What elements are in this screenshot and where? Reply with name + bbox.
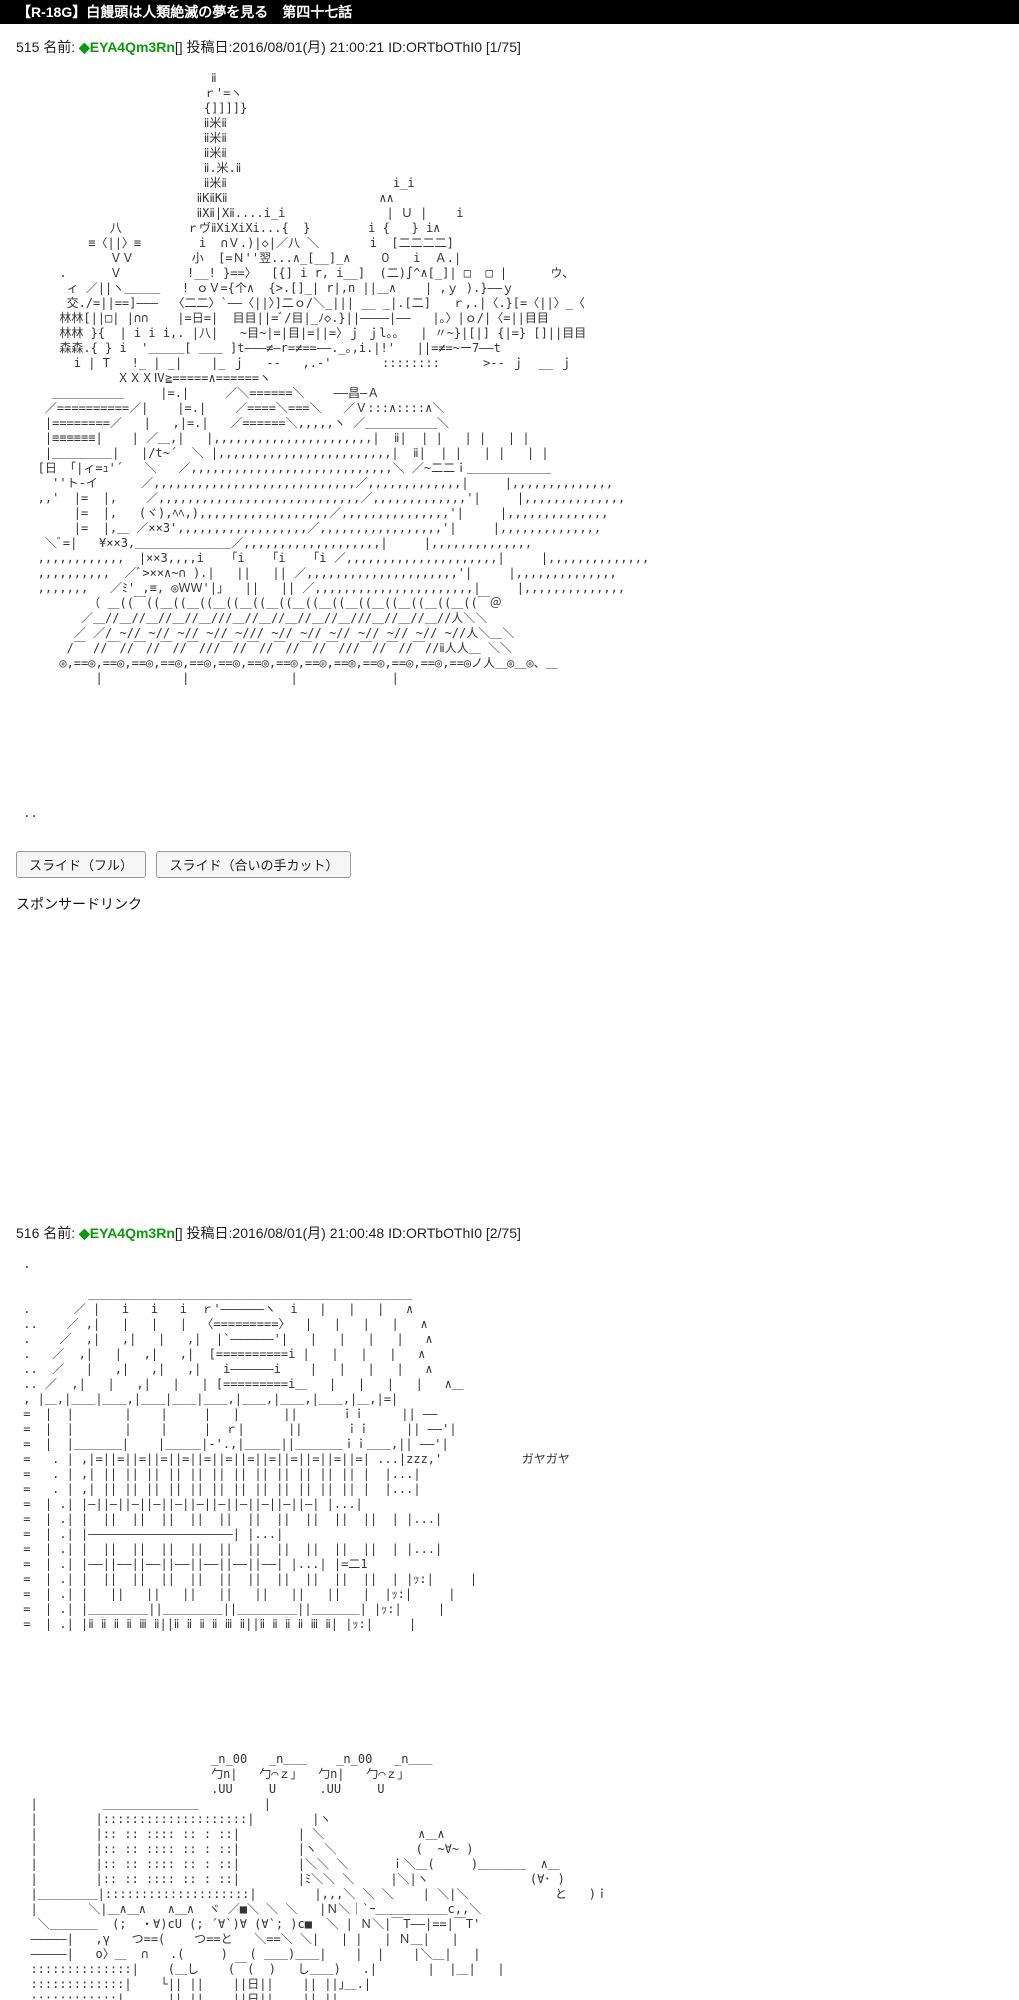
post-515-header: 515 名前: ◆EYA4Qm3Rn[] 投稿日:2016/08/01(月) 2… (16, 37, 1019, 57)
thread-title-bar: 【R-18G】白饅頭は人類絶滅の夢を見る 第四十七話 (0, 0, 1019, 24)
post-515: 515 名前: ◆EYA4Qm3Rn[] 投稿日:2016/08/01(月) 2… (16, 37, 1019, 1210)
poster-tripcode[interactable]: ◆EYA4Qm3Rn (79, 39, 175, 55)
post-number: 516 (16, 1225, 39, 1241)
post-meta: [] 投稿日:2016/08/01(月) 21:00:48 ID:ORTbOTh… (175, 1225, 521, 1241)
slide-button-row: スライド（フル） スライド（合いの手カット） (16, 851, 1019, 878)
post-516: 516 名前: ◆EYA4Qm3Rn[] 投稿日:2016/08/01(月) 2… (16, 1223, 1019, 2000)
name-label: 名前: (43, 1225, 75, 1241)
ad-area (16, 914, 1019, 1210)
slide-cut-button[interactable]: スライド（合いの手カット） (156, 851, 351, 878)
poster-tripcode[interactable]: ◆EYA4Qm3Rn (79, 1225, 175, 1241)
ascii-art-inn: . ＿＿＿＿＿＿＿＿＿＿＿＿＿＿＿＿＿＿＿＿＿＿＿＿＿＿＿ . ／ | i i … (16, 1257, 1019, 2000)
post-number: 515 (16, 39, 39, 55)
name-label: 名前: (43, 39, 75, 55)
post-meta: [] 投稿日:2016/08/01(月) 21:00:21 ID:ORTbOTh… (175, 39, 521, 55)
thread-page: 【R-18G】白饅頭は人類絶滅の夢を見る 第四十七話 515 名前: ◆EYA4… (0, 0, 1019, 2000)
ascii-art-castle: ⅱ ｒ'=ヽ {]]]]} ⅱ米ⅱ ⅱ米ⅱ ⅱ米ⅱ ⅱ.米.ⅱ (16, 71, 1019, 821)
post-516-header: 516 名前: ◆EYA4Qm3Rn[] 投稿日:2016/08/01(月) 2… (16, 1223, 1019, 1243)
thread-title: 【R-18G】白饅頭は人類絶滅の夢を見る 第四十七話 (17, 4, 352, 20)
slide-full-button[interactable]: スライド（フル） (16, 851, 146, 878)
thread-content: 515 名前: ◆EYA4Qm3Rn[] 投稿日:2016/08/01(月) 2… (0, 37, 1019, 2000)
sponsored-link-label: スポンサードリンク (16, 894, 1019, 914)
